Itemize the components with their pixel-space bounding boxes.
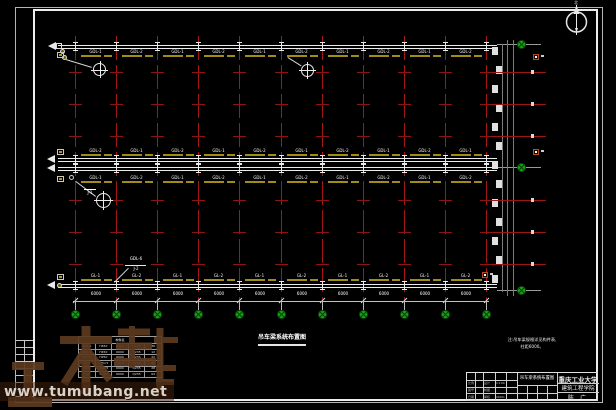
beam-column-tick — [237, 281, 242, 290]
grid-row-dash — [151, 104, 164, 105]
beam-span-label: GDL-2 — [450, 50, 481, 54]
grid-row-dash — [192, 104, 205, 105]
north-arrow-label: 北 — [574, 0, 578, 6]
beam-column-tick — [155, 164, 160, 173]
detail-flag-dot — [59, 151, 62, 153]
grid-row-dash — [398, 72, 411, 73]
title-block-line — [527, 385, 528, 400]
beam-span-dash — [369, 279, 400, 281]
cad-drawing-canvas: 北 吊车梁系统布置图 注:吊车梁规格详见构件表, 柱距6000。 吊车梁系统布置… — [0, 0, 616, 410]
grid-row-dash — [151, 136, 164, 137]
beam-column-tick — [484, 164, 489, 173]
title-block-scale-value: 1:100 — [496, 381, 505, 385]
crane-beam-line — [58, 161, 497, 162]
beam-span-dash — [122, 55, 153, 57]
crane-beam-line — [58, 45, 497, 46]
beam-column-tick — [484, 281, 489, 290]
beam-span-label: GL-1 — [244, 274, 275, 278]
grid-axis-bubble — [517, 40, 526, 49]
beam-column-tick — [320, 155, 325, 164]
plan-title-underline — [258, 344, 306, 346]
title-block-line — [537, 385, 538, 400]
beam-column-tick — [484, 155, 489, 164]
span-dimension-text: 6000 — [370, 292, 398, 296]
beam-span-label: GDL-2 — [286, 50, 317, 54]
beam-column-tick — [196, 281, 201, 290]
beam-column-tick — [361, 164, 366, 173]
beam-column-tick — [361, 42, 366, 51]
plan-note-line1: 注:吊车梁规格详见构件表, — [500, 337, 564, 344]
beam-span-dash — [287, 279, 318, 281]
beam-span-dash — [287, 55, 318, 57]
detail-callout-vline — [103, 191, 104, 210]
leader-start-ring — [69, 175, 74, 180]
grid-row-dash — [69, 104, 82, 105]
beam-span-dash — [328, 181, 359, 183]
grid-row-dash — [316, 104, 329, 105]
detail-flag — [57, 176, 64, 182]
watermark-url: www.tumubang.net — [4, 384, 167, 400]
beam-span-label: GDL-2 — [80, 149, 111, 153]
span-dimension-text: 6000 — [82, 292, 110, 296]
beam-span-label: GDL-1 — [327, 176, 358, 180]
grid-row-dash — [439, 104, 452, 105]
row-axis-stub — [491, 264, 546, 265]
row-axis-stub — [491, 200, 546, 201]
row-axis-tick — [531, 70, 534, 74]
title-block-university: 重庆工业大学 — [557, 374, 599, 384]
grid-row-dash — [151, 200, 164, 201]
beam-column-tick — [361, 281, 366, 290]
beam-span-dash — [451, 55, 482, 57]
beam-span-label: GL-1 — [409, 274, 440, 278]
title-block-date-label: 日期 — [468, 395, 481, 399]
beam-span-dash — [163, 154, 194, 156]
beam-span-dash — [163, 279, 194, 281]
beam-span-dash — [204, 154, 235, 156]
beam-span-dash — [245, 279, 276, 281]
grid-row-dash — [398, 104, 411, 105]
beam-column-tick — [73, 164, 78, 173]
bubble-stem — [116, 302, 117, 310]
row-axis-stub — [491, 104, 546, 105]
beam-span-label: GDL-1 — [286, 149, 317, 153]
beam-span-dash — [451, 154, 482, 156]
grid-row-dash — [233, 136, 246, 137]
grid-row-dash — [110, 264, 123, 265]
beam-column-tick — [443, 155, 448, 164]
bubble-stem — [445, 302, 446, 310]
wall-pilaster — [492, 275, 498, 283]
beam-span-dash — [204, 181, 235, 183]
beam-span-label: GDL-1 — [244, 50, 275, 54]
grid-row-dash — [275, 104, 288, 105]
grid-row-dash — [69, 232, 82, 233]
grid-row-dash — [69, 136, 82, 137]
beam-span-label: GDL-2 — [203, 176, 234, 180]
grid-row-dash — [357, 136, 370, 137]
section-mark-ring-icon — [57, 283, 62, 288]
grid-row-dash — [275, 264, 288, 265]
plan-title: 吊车梁系统布置图 — [252, 334, 312, 342]
section-cut-arrow-icon — [47, 155, 55, 163]
row-axis-tick — [531, 198, 534, 202]
detail-callout-vline — [307, 62, 308, 79]
beam-span-dash — [369, 181, 400, 183]
beam-span-label: GDL-2 — [368, 50, 399, 54]
crane-beam-line — [58, 158, 497, 159]
grid-row-dash — [192, 136, 205, 137]
grid-axis-bubble — [194, 310, 203, 319]
grid-row-dash — [192, 232, 205, 233]
column-marker-tick — [541, 55, 544, 57]
beam-column-tick — [114, 155, 119, 164]
detail-flag-dot — [59, 54, 62, 56]
beam-span-label: GDL-1 — [203, 149, 234, 153]
wall-pilaster — [492, 161, 498, 169]
detail-flag — [57, 52, 64, 58]
row-axis-stub — [491, 72, 546, 73]
beam-span-dash — [410, 55, 441, 57]
beam-column-tick — [196, 155, 201, 164]
beam-span-label: GDL-1 — [162, 176, 193, 180]
grid-axis-bubble — [277, 310, 286, 319]
beam-span-dash — [81, 181, 112, 183]
beam-column-tick — [320, 164, 325, 173]
grid-row-dash — [316, 264, 329, 265]
beam-span-dash — [410, 154, 441, 156]
beam-span-label: GL-1 — [162, 274, 193, 278]
beam-span-label: GL-1 — [80, 274, 111, 278]
detail-flag-dot — [59, 178, 62, 180]
title-block-author: 陈 广 — [557, 393, 599, 402]
section-cut-arrow-icon — [47, 164, 55, 172]
grid-row-dash — [398, 136, 411, 137]
grid-row-dash — [316, 200, 329, 201]
title-block-line — [547, 385, 548, 400]
grid-row-dash — [69, 200, 82, 201]
beam-span-dash — [81, 55, 112, 57]
beam-span-dash — [204, 279, 235, 281]
grid-row-dash — [439, 136, 452, 137]
detail-ref-label: GDL-6 — [126, 257, 146, 261]
beam-span-label: GDL-1 — [121, 149, 152, 153]
title-block-drawing-name: 吊车梁系统布置图 — [517, 375, 557, 381]
beam-column-tick — [320, 281, 325, 290]
grid-row-dash — [439, 232, 452, 233]
grid-row-dash — [151, 264, 164, 265]
column-marker — [482, 272, 488, 278]
beam-column-tick — [443, 42, 448, 51]
beam-span-dash — [287, 181, 318, 183]
beam-span-label: GDL-2 — [121, 176, 152, 180]
beam-column-tick — [237, 155, 242, 164]
beam-column-tick — [320, 42, 325, 51]
beam-column-tick — [279, 155, 284, 164]
beam-span-dash — [122, 181, 153, 183]
beam-span-dash — [245, 154, 276, 156]
beam-span-dash — [287, 154, 318, 156]
beam-span-label: GDL-2 — [203, 50, 234, 54]
grid-row-dash — [357, 264, 370, 265]
grid-row-dash — [275, 200, 288, 201]
beam-span-label: GL-2 — [368, 274, 399, 278]
watermark-band: www.tumubang.net — [0, 382, 174, 401]
beam-column-tick — [73, 155, 78, 164]
grid-row-dash — [233, 104, 246, 105]
grid-row-dash — [275, 232, 288, 233]
beam-column-tick — [484, 42, 489, 51]
beam-column-tick — [114, 42, 119, 51]
grid-row-dash — [192, 72, 205, 73]
crane-beam-line — [58, 284, 497, 285]
grid-row-dash — [110, 104, 123, 105]
span-dimension-text: 6000 — [246, 292, 274, 296]
detail-flag-dot — [59, 276, 62, 278]
column-marker-tick — [541, 150, 544, 152]
dimension-line — [73, 301, 489, 302]
grid-row-dash — [110, 72, 123, 73]
grid-row-dash — [357, 72, 370, 73]
beam-column-tick — [73, 42, 78, 51]
beam-span-label: GDL-1 — [327, 50, 358, 54]
grid-axis-bubble — [482, 310, 491, 319]
grid-row-dash — [357, 200, 370, 201]
title-block-scale-label: 比例 — [468, 381, 481, 385]
grid-axis-bubble — [441, 310, 450, 319]
beam-span-dash — [451, 279, 482, 281]
beam-span-label: GDL-2 — [450, 176, 481, 180]
grid-row-dash — [439, 264, 452, 265]
beam-span-label: GDL-2 — [162, 149, 193, 153]
grid-row-dash — [398, 264, 411, 265]
right-dimension-line — [507, 40, 508, 296]
grid-row-dash — [110, 232, 123, 233]
plan-note-line2: 柱距6000。 — [500, 344, 564, 351]
bubble-stem — [404, 302, 405, 310]
beam-span-dash — [122, 279, 153, 281]
grid-row-dash — [316, 136, 329, 137]
grid-row-dash — [233, 200, 246, 201]
detail-flag — [57, 274, 64, 280]
row-axis-stub — [491, 232, 546, 233]
beam-span-label: GDL-1 — [409, 50, 440, 54]
bubble-stem — [157, 302, 158, 310]
beam-column-tick — [279, 42, 284, 51]
bubble-stem — [486, 302, 487, 310]
column-marker — [533, 149, 539, 155]
beam-span-dash — [81, 154, 112, 156]
plan-notes: 注:吊车梁规格详见构件表, 柱距6000。 — [500, 337, 564, 350]
row-axis-tick — [531, 262, 534, 266]
beam-span-label: GDL-2 — [368, 176, 399, 180]
wall-pilaster — [492, 123, 498, 131]
grid-row-dash — [233, 232, 246, 233]
beam-column-tick — [155, 42, 160, 51]
row-axis-stub — [491, 136, 546, 137]
beam-column-tick — [402, 281, 407, 290]
detail-ref-label: J-1 — [84, 189, 96, 195]
wall-pilaster — [492, 85, 498, 93]
crane-beam-line — [58, 287, 497, 288]
grid-row-dash — [439, 72, 452, 73]
beam-span-dash — [369, 154, 400, 156]
grid-axis-bubble — [318, 310, 327, 319]
grid-axis-bubble — [400, 310, 409, 319]
column-marker-dot — [535, 56, 537, 58]
grid-row-dash — [192, 200, 205, 201]
title-block-design-label: 设计 — [484, 381, 494, 385]
span-dimension-text: 6000 — [164, 292, 192, 296]
detail-callout-vline — [100, 61, 101, 78]
beam-span-dash — [163, 181, 194, 183]
beam-column-tick — [237, 42, 242, 51]
grid-row-dash — [233, 72, 246, 73]
beam-span-dash — [328, 55, 359, 57]
beam-column-tick — [237, 164, 242, 173]
beam-span-dash — [245, 55, 276, 57]
beam-span-label: GDL-2 — [327, 149, 358, 153]
beam-column-tick — [279, 164, 284, 173]
wall-line — [502, 44, 503, 292]
grid-row-dash — [69, 72, 82, 73]
title-block-department: 建筑工程学院 — [557, 384, 599, 392]
beam-column-tick — [402, 164, 407, 173]
beam-column-tick — [361, 155, 366, 164]
grid-axis-bubble — [235, 310, 244, 319]
title-block-no-label: 图号 — [468, 388, 481, 392]
beam-span-dash — [328, 154, 359, 156]
span-dimension-text: 6000 — [411, 292, 439, 296]
grid-axis-bubble — [359, 310, 368, 319]
title-block: 吊车梁系统布置图 重庆工业大学 建筑工程学院 陈 广 设计 制图 审核 比例 图… — [466, 372, 598, 401]
title-block-date-value: 2004.6 — [496, 395, 505, 399]
grid-row-dash — [151, 232, 164, 233]
grid-row-dash — [275, 72, 288, 73]
beam-span-label: GDL-2 — [409, 149, 440, 153]
beam-span-dash — [122, 154, 153, 156]
beam-column-tick — [443, 281, 448, 290]
beam-column-tick — [402, 155, 407, 164]
beam-column-tick — [196, 42, 201, 51]
grid-axis-bubble — [517, 163, 526, 172]
column-marker-dot — [484, 274, 486, 276]
span-dimension-text: 6000 — [205, 292, 233, 296]
beam-span-label: GDL-1 — [409, 176, 440, 180]
beam-span-label: GDL-2 — [121, 50, 152, 54]
beam-span-dash — [410, 279, 441, 281]
detail-flag — [57, 149, 64, 155]
beam-span-dash — [81, 279, 112, 281]
beam-span-label: GDL-1 — [80, 176, 111, 180]
beam-span-dash — [204, 55, 235, 57]
title-block-draft-label: 制图 — [484, 388, 494, 392]
wall-pilaster — [492, 237, 498, 245]
grid-row-dash — [357, 232, 370, 233]
grid-row-dash — [316, 232, 329, 233]
bubble-stem — [198, 302, 199, 310]
beam-span-label: GDL-1 — [368, 149, 399, 153]
column-marker-tick — [490, 273, 493, 275]
beam-span-label: GL-2 — [286, 274, 317, 278]
grid-row-dash — [439, 200, 452, 201]
grid-row-dash — [398, 232, 411, 233]
beam-span-dash — [163, 55, 194, 57]
span-dimension-text: 6000 — [288, 292, 316, 296]
bubble-stem — [322, 302, 323, 310]
column-marker-dot — [535, 151, 537, 153]
beam-span-label: GL-2 — [450, 274, 481, 278]
beam-column-tick — [73, 281, 78, 290]
crane-beam-line — [58, 167, 497, 168]
row-axis-tick — [531, 134, 534, 138]
beam-span-dash — [451, 181, 482, 183]
grid-row-dash — [69, 264, 82, 265]
detail-ref-label: J-2 — [126, 267, 146, 271]
grid-row-dash — [151, 72, 164, 73]
bubble-stem — [239, 302, 240, 310]
grid-row-dash — [233, 264, 246, 265]
beam-span-label: GDL-1 — [162, 50, 193, 54]
beam-column-tick — [443, 164, 448, 173]
beam-span-label: GDL-1 — [450, 149, 481, 153]
span-dimension-text: 6000 — [452, 292, 480, 296]
beam-span-dash — [410, 181, 441, 183]
grid-row-dash — [192, 264, 205, 265]
beam-span-dash — [369, 55, 400, 57]
beam-span-label: GL-1 — [327, 274, 358, 278]
span-dimension-text: 6000 — [329, 292, 357, 296]
beam-span-label: GDL-2 — [244, 149, 275, 153]
right-dimension-line — [513, 40, 514, 296]
beam-span-label: GDL-1 — [80, 50, 111, 54]
beam-column-tick — [279, 281, 284, 290]
grid-row-dash — [275, 136, 288, 137]
bubble-stem — [281, 302, 282, 310]
bubble-stem — [363, 302, 364, 310]
beam-column-tick — [402, 42, 407, 51]
title-block-review-label: 审核 — [484, 395, 494, 399]
grid-row-dash — [316, 72, 329, 73]
beam-span-label: GL-2 — [203, 274, 234, 278]
span-dimension-text: 6000 — [123, 292, 151, 296]
beam-span-label: GL-2 — [121, 274, 152, 278]
column-marker — [533, 54, 539, 60]
grid-axis-bubble — [517, 286, 526, 295]
section-cut-arrow-icon — [48, 42, 56, 50]
beam-column-tick — [114, 164, 119, 173]
beam-column-tick — [155, 281, 160, 290]
bubble-stem — [75, 302, 76, 310]
row-axis-tick — [531, 230, 534, 234]
beam-span-label: GDL-1 — [244, 176, 275, 180]
crane-beam-line — [58, 170, 497, 171]
grid-row-dash — [357, 104, 370, 105]
beam-column-tick — [196, 164, 201, 173]
beam-column-tick — [155, 155, 160, 164]
beam-span-dash — [245, 181, 276, 183]
beam-span-dash — [328, 279, 359, 281]
north-arrow-icon — [563, 2, 590, 38]
wall-pilaster — [492, 47, 498, 55]
row-axis-tick — [531, 102, 534, 106]
section-cut-arrow-icon — [47, 281, 55, 289]
grid-row-dash — [110, 136, 123, 137]
beam-span-label: GDL-2 — [286, 176, 317, 180]
grid-row-dash — [398, 200, 411, 201]
